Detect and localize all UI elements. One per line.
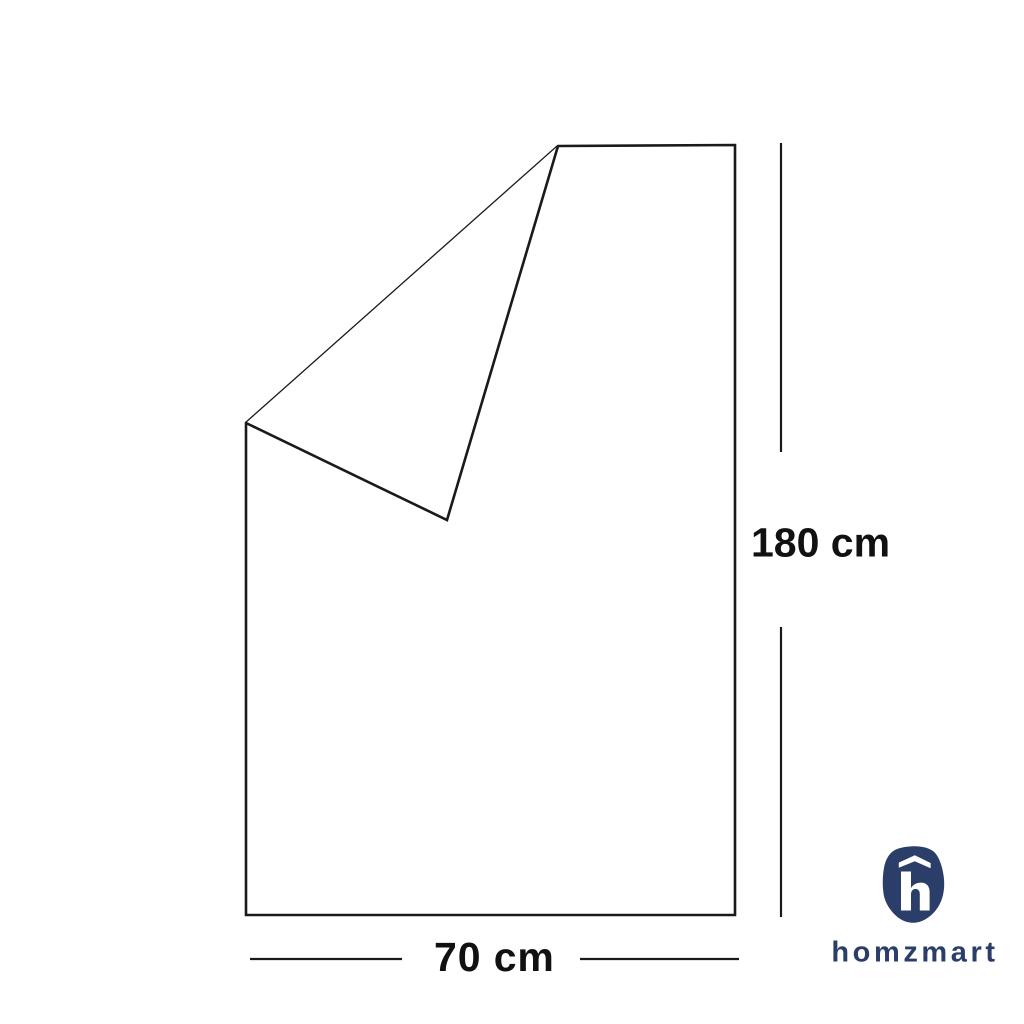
svg-text:70 cm: 70 cm xyxy=(434,934,555,980)
svg-text:180 cm: 180 cm xyxy=(751,520,890,566)
svg-text:homzmart: homzmart xyxy=(831,936,998,968)
